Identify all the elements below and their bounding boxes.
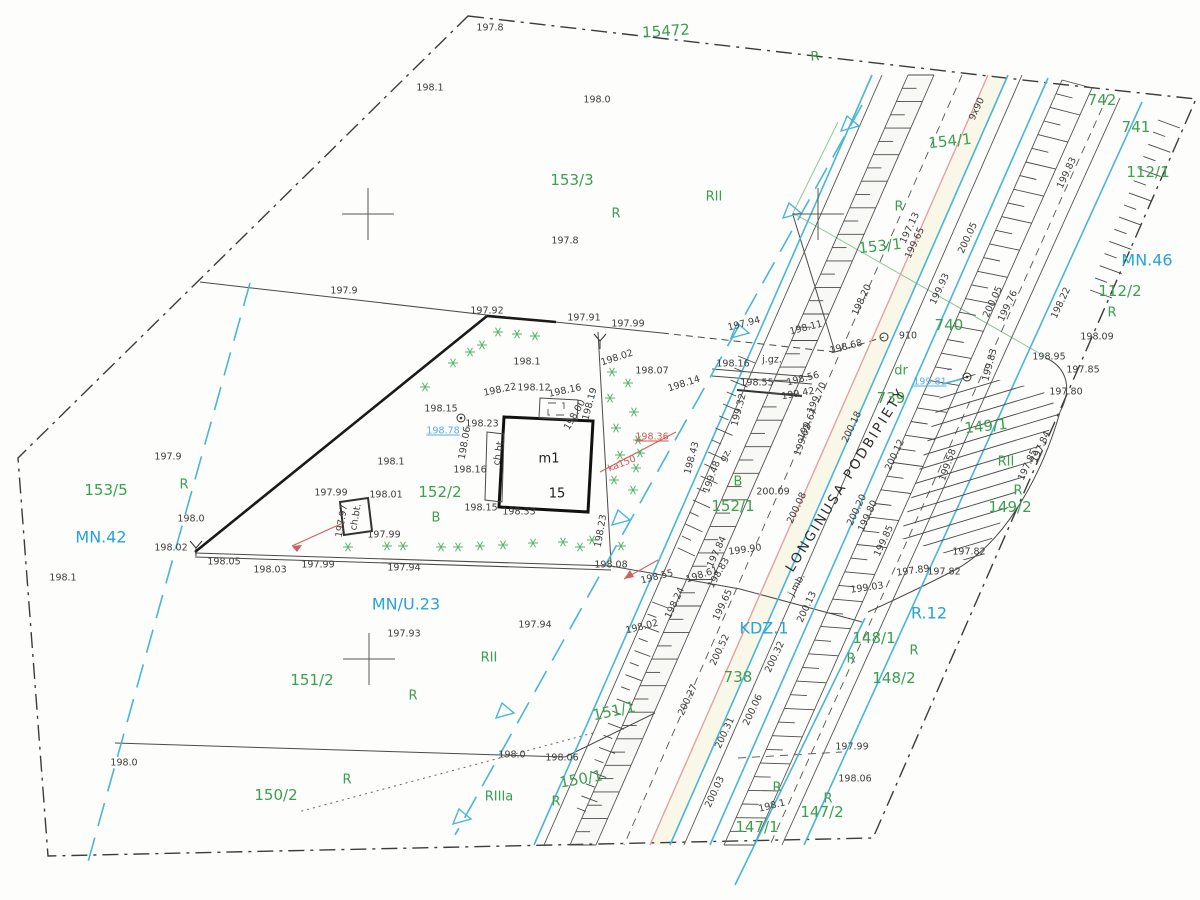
scarp-tick	[905, 435, 935, 439]
tree-symbol	[605, 394, 615, 403]
scarp-tick	[881, 490, 911, 494]
survey-point-dot	[460, 417, 463, 420]
scarp-tick	[1002, 217, 1032, 224]
label-leader-line	[942, 379, 962, 384]
tree-symbol	[475, 542, 485, 551]
tree-symbol	[453, 543, 463, 552]
scarp-tick	[796, 681, 826, 683]
scarp-tick	[1008, 203, 1024, 207]
scarp-tick	[1056, 94, 1073, 98]
scarp-tick	[972, 285, 989, 288]
scarp-tick	[803, 667, 820, 668]
scarp-tick	[621, 687, 630, 690]
flow-direction-triangle-icon	[612, 510, 630, 525]
scarp-tick	[760, 763, 790, 764]
embankment-hatch-line	[870, 405, 1090, 471]
scarp-tick	[577, 808, 586, 811]
parcel-boundaries	[115, 215, 1067, 812]
tree-symbol	[616, 542, 626, 551]
scarp-tick	[941, 353, 971, 358]
scarp-tick	[682, 536, 691, 540]
scarp-tick	[821, 626, 851, 628]
scarp-tick	[1014, 189, 1044, 196]
embankment-hatch-line	[870, 379, 1090, 445]
scarp-tick	[790, 695, 807, 696]
scarp-tick	[845, 572, 875, 575]
scarp-tick	[1139, 169, 1161, 177]
tree-symbol	[493, 328, 503, 337]
buildings	[340, 398, 593, 535]
grid-cross-icon	[792, 188, 844, 240]
tree-symbol	[629, 408, 639, 417]
road-surface-tint	[570, 78, 1008, 845]
tree-symbol	[575, 543, 585, 552]
tree-symbol	[633, 436, 643, 445]
scarp-tick	[766, 749, 783, 750]
scarp-tick	[772, 736, 802, 737]
scarp-tick	[586, 784, 595, 787]
tree-symbol	[611, 424, 621, 433]
scarp-tick	[869, 517, 899, 521]
scarp-tick	[1044, 121, 1061, 125]
scarp-tick	[1114, 229, 1126, 233]
scarp-tick	[678, 548, 695, 556]
grid-cross-icon	[342, 188, 394, 240]
scarp-tick	[1026, 162, 1056, 169]
scarp-tick	[686, 524, 703, 532]
scarp-tick	[1119, 217, 1141, 225]
embankment-hatch-line	[870, 418, 1090, 484]
scarp-tick	[911, 422, 928, 425]
scarp-tick	[648, 614, 657, 617]
scarp-tick	[1143, 156, 1155, 160]
junction-y-icon	[594, 334, 606, 349]
scarp-tick	[697, 488, 706, 492]
tree-symbol	[558, 538, 568, 547]
tree-symbol	[530, 332, 540, 341]
scarp-tick	[899, 449, 916, 451]
scarp-tick	[612, 711, 621, 714]
scarp-tick	[1109, 241, 1131, 249]
tree-symbol	[528, 539, 538, 548]
tree-symbol	[436, 543, 446, 552]
embankment-hatch-line	[870, 535, 1090, 601]
tree-symbol	[465, 348, 475, 357]
scarp-tick	[1134, 181, 1146, 185]
scarp-tick	[1129, 193, 1151, 201]
embankment-hatch-line	[870, 548, 1090, 614]
scarp-tick	[634, 651, 650, 657]
scarp-tick	[996, 230, 1013, 234]
scarp-tick	[1050, 107, 1080, 115]
scarp-tick	[863, 531, 880, 533]
embankment-hatch-line	[870, 327, 1090, 393]
scarp-tick	[712, 440, 721, 444]
outbuilding-outline	[340, 498, 372, 535]
scarp-tick	[893, 463, 923, 467]
scarp-tick	[1124, 205, 1136, 209]
embankment-hatch-line	[870, 353, 1090, 419]
scarp-tick	[1100, 266, 1122, 274]
scarp-tick	[851, 558, 868, 560]
embankment-hatch-line	[870, 470, 1090, 536]
scarp-tick	[1148, 144, 1170, 152]
tree-symbol	[343, 543, 353, 552]
scarp-tick	[839, 585, 856, 587]
scarp-tick	[990, 244, 1020, 250]
scarp-tick	[731, 380, 748, 387]
tree-symbol	[631, 464, 641, 473]
scarp-tick	[1153, 132, 1165, 136]
scarp-tick	[1090, 290, 1112, 298]
scarp-tick	[652, 602, 668, 608]
tree-symbol	[512, 330, 522, 339]
scarp-tick	[947, 340, 964, 343]
scarp-tick	[748, 790, 778, 791]
scarp-tick	[887, 476, 904, 478]
scarp-tick	[833, 599, 863, 602]
scarp-tick	[1032, 148, 1049, 152]
tree-symbol	[635, 449, 645, 458]
building-m1-outline	[499, 417, 593, 512]
scarp-tick	[1062, 80, 1092, 88]
scarp-tick	[778, 722, 795, 723]
scarp-tick	[1020, 176, 1037, 180]
scarp-tick	[1095, 278, 1107, 282]
embankment-hatch-line	[870, 392, 1090, 458]
scarp-tick	[984, 258, 1001, 261]
scarp-tick	[1038, 135, 1068, 143]
scarp-tick	[617, 699, 633, 705]
scarp-tick	[630, 663, 639, 666]
tree-symbol	[398, 542, 408, 551]
cadastral-map-canvas: 15472R153/3RIIR154/1153/1R742741112/1MN.…	[0, 0, 1200, 900]
tree-symbol	[607, 368, 617, 377]
tree-symbol	[477, 341, 487, 350]
survey-point-dot	[966, 376, 969, 379]
scarp-tick	[704, 464, 713, 468]
scarp-tick	[1158, 120, 1180, 128]
flow-direction-triangle-icon	[496, 703, 514, 718]
scarp-tick	[923, 394, 940, 397]
scarp-tick	[693, 500, 710, 508]
tree-symbol	[448, 359, 458, 368]
tree-symbol	[420, 383, 430, 392]
tree-symbol	[382, 542, 392, 551]
tree-symbol	[623, 379, 633, 388]
embankment-hatch-line	[870, 509, 1090, 575]
embankment-hatch	[870, 314, 1090, 627]
scarp-tick	[639, 638, 648, 641]
scarp-tick	[689, 512, 698, 516]
scarp-tick	[965, 299, 995, 305]
tree-symbol	[615, 451, 625, 460]
scarp-tick	[626, 675, 642, 681]
grid-cross-icon	[343, 633, 395, 685]
scarp-tick	[875, 504, 892, 506]
tree-symbol	[498, 541, 508, 550]
scarp-tick	[953, 326, 983, 331]
embankment-hatch-line	[870, 340, 1090, 406]
scarp-tick	[809, 654, 839, 656]
embankment-hatch-line	[870, 457, 1090, 523]
tree-symbol	[587, 536, 597, 545]
scarp-tick	[784, 708, 814, 709]
scarp-tick	[643, 626, 659, 632]
map-linework	[0, 0, 1200, 900]
scarp-tick	[1105, 254, 1117, 258]
tree-symbol	[628, 486, 638, 495]
scarp-tick	[978, 271, 1008, 277]
tree-symbol	[609, 476, 619, 485]
scarp-tick	[595, 760, 604, 763]
scarp-tick	[608, 723, 624, 729]
scarp-tick	[815, 640, 832, 641]
embankment-hatch-line	[870, 444, 1090, 510]
scarp-tick	[857, 545, 887, 548]
utility-red-lines	[292, 432, 676, 579]
